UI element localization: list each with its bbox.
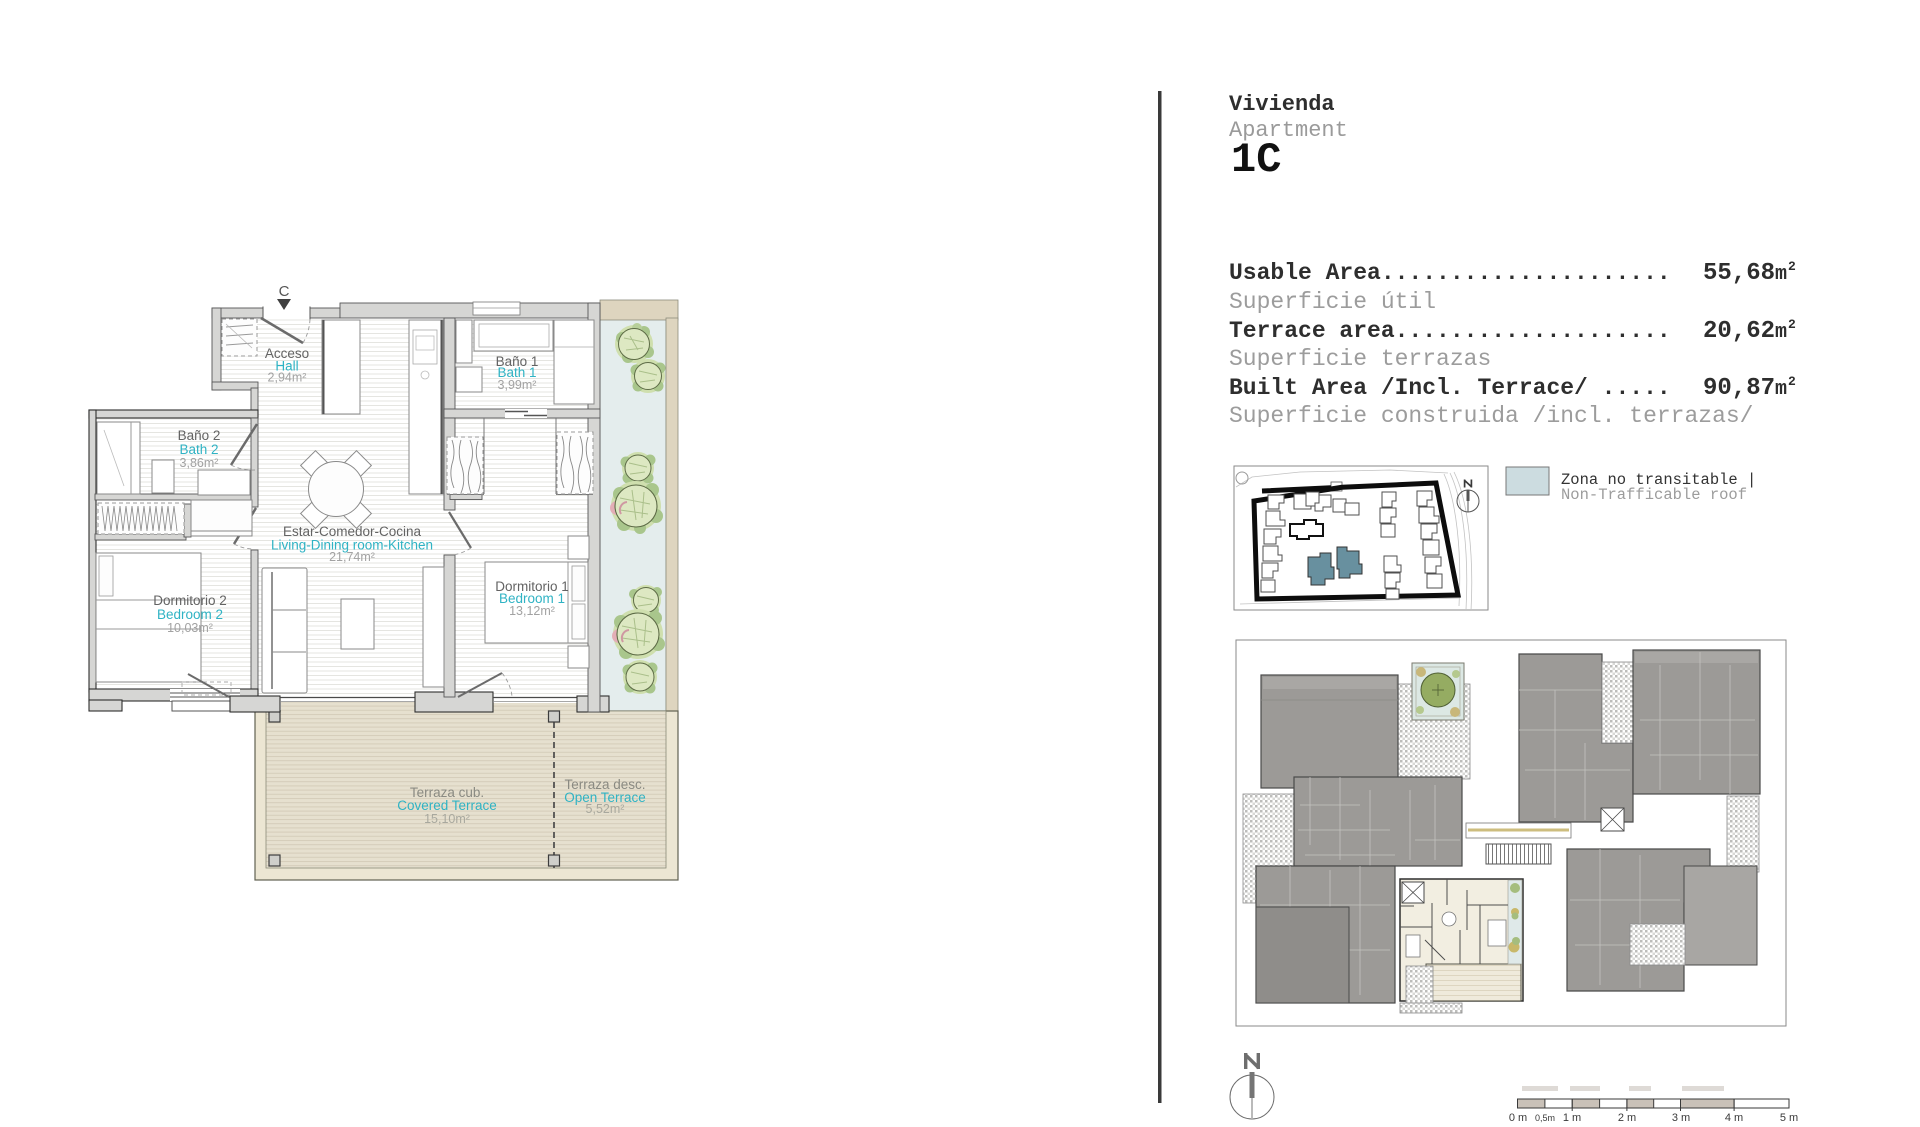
svg-text:Covered Terrace: Covered Terrace <box>397 798 497 813</box>
svg-text:1C: 1C <box>1231 136 1281 184</box>
svg-text:1 m: 1 m <box>1563 1112 1581 1124</box>
svg-text:90,87: 90,87 <box>1703 375 1775 402</box>
svg-text:13,12m²: 13,12m² <box>509 604 555 618</box>
svg-text:2 m: 2 m <box>1618 1112 1636 1124</box>
svg-text:C: C <box>279 283 290 300</box>
svg-text:Superficie construida /incl. t: Superficie construida /incl. terrazas/ <box>1229 403 1754 429</box>
svg-text:Bath 2: Bath 2 <box>179 442 218 457</box>
svg-text:3,99m²: 3,99m² <box>498 378 537 392</box>
svg-text:m: m <box>1775 378 1787 401</box>
svg-text:3,86m²: 3,86m² <box>180 456 219 470</box>
svg-text:Superficie terrazas: Superficie terrazas <box>1229 346 1491 372</box>
svg-text:2: 2 <box>1788 259 1796 274</box>
svg-text:Usable Area...................: Usable Area..................... <box>1229 260 1671 286</box>
svg-text:m: m <box>1775 263 1787 286</box>
svg-text:Terrace area..................: Terrace area.................... <box>1229 318 1671 344</box>
svg-text:m: m <box>1775 321 1787 344</box>
svg-text:0 m: 0 m <box>1509 1112 1527 1124</box>
svg-text:2: 2 <box>1788 374 1796 389</box>
svg-text:21,74m²: 21,74m² <box>329 550 375 564</box>
svg-text:0,5m: 0,5m <box>1535 1113 1555 1123</box>
svg-text:10,03m²: 10,03m² <box>167 621 213 635</box>
svg-text:Non-Trafficable roof: Non-Trafficable roof <box>1561 486 1747 504</box>
svg-text:4 m: 4 m <box>1725 1112 1743 1124</box>
svg-text:55,68: 55,68 <box>1703 260 1775 287</box>
svg-text:2: 2 <box>1788 317 1796 332</box>
svg-text:Baño 2: Baño 2 <box>178 428 221 443</box>
svg-text:Vivienda: Vivienda <box>1229 92 1335 117</box>
svg-text:5 m: 5 m <box>1780 1112 1798 1124</box>
svg-text:Bedroom 2: Bedroom 2 <box>157 607 223 622</box>
svg-text:Superficie útil: Superficie útil <box>1229 289 1436 315</box>
svg-text:3 m: 3 m <box>1672 1112 1690 1124</box>
svg-text:5,52m²: 5,52m² <box>586 802 625 816</box>
svg-text:15,10m²: 15,10m² <box>424 812 470 826</box>
svg-text:2,94m²: 2,94m² <box>268 371 307 385</box>
svg-text:Built Area /Incl. Terrace/ ...: Built Area /Incl. Terrace/ ..... <box>1229 375 1671 401</box>
svg-text:Dormitorio 2: Dormitorio 2 <box>153 593 227 608</box>
svg-text:20,62: 20,62 <box>1703 318 1775 345</box>
